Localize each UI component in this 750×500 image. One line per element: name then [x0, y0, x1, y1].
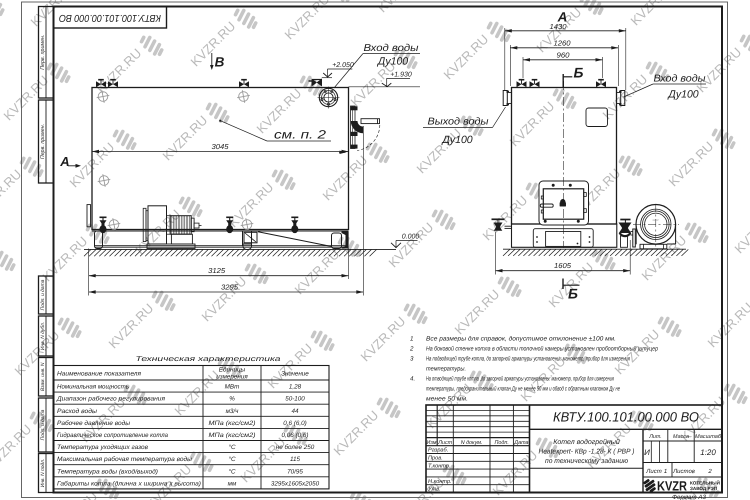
svg-text:КОТЕЛЬНЫЙ: КОТЕЛЬНЫЙ	[690, 479, 720, 485]
svg-text:измерения: измерения	[216, 373, 248, 380]
svg-text:1:20: 1:20	[700, 448, 716, 457]
svg-text:Вход воды: Вход воды	[364, 43, 420, 54]
svg-text:Номинальная мощность: Номинальная мощность	[57, 384, 129, 391]
svg-text:Вход воды: Вход воды	[654, 74, 707, 85]
svg-text:1,28: 1,28	[289, 384, 302, 391]
svg-text:Т.контр.: Т.контр.	[428, 463, 451, 469]
svg-text:Дата: Дата	[513, 440, 528, 446]
svg-text:1: 1	[664, 468, 667, 475]
svg-text:И: И	[644, 448, 650, 457]
svg-text:3125: 3125	[208, 266, 226, 275]
svg-text:Лист: Лист	[437, 440, 452, 446]
svg-text:А: А	[59, 154, 69, 169]
svg-text:не более 250: не более 250	[276, 444, 315, 451]
svg-text:3: 3	[410, 355, 414, 362]
svg-text:44: 44	[291, 408, 299, 415]
svg-text:°С: °С	[228, 456, 236, 463]
svg-text:1605: 1605	[554, 261, 572, 270]
svg-text:Рабочее давление воды: Рабочее давление воды	[57, 420, 130, 427]
svg-text:Б: Б	[568, 286, 578, 302]
svg-text:0.000: 0.000	[402, 234, 420, 241]
svg-text:А: А	[557, 10, 568, 25]
svg-text:Габариты котла (длинна х ширин: Габариты котла (длинна х ширина х высота…	[57, 480, 201, 487]
svg-text:Инв. N подл.: Инв. N подл.	[40, 459, 46, 488]
svg-text:4.: 4.	[410, 376, 415, 383]
svg-text:Расход воды: Расход воды	[57, 408, 97, 415]
svg-text:KVZR: KVZR	[657, 478, 687, 493]
svg-text:Подп.: Подп.	[495, 440, 509, 446]
svg-text:На боковой стенке котла в обла: На боковой стенке котла в области топочн…	[426, 345, 658, 352]
svg-text:Лист: Лист	[645, 468, 661, 475]
svg-text:Гидравлическое сопротивление к: Гидравлическое сопротивление котла	[57, 432, 168, 439]
svg-text:Значение: Значение	[281, 371, 309, 378]
svg-text:960: 960	[557, 50, 570, 59]
svg-text:Перв. примен.: Перв. примен.	[40, 124, 46, 159]
svg-text:Максимальная рабочая температу: Максимальная рабочая температура воды	[57, 456, 192, 463]
svg-text:Масса: Масса	[673, 434, 689, 440]
svg-text:Формат А3: Формат А3	[672, 494, 706, 500]
svg-text:%: %	[229, 396, 235, 403]
svg-text:0,06 (0,6): 0,06 (0,6)	[282, 432, 309, 439]
svg-text:Б: Б	[574, 65, 584, 81]
svg-text:В: В	[215, 55, 225, 70]
svg-text:Подп. и дата: Подп. и дата	[40, 409, 46, 440]
svg-text:Взам. инв. N: Взам. инв. N	[40, 362, 46, 391]
svg-text:На отводящей трубе котла ,до з: На отводящей трубе котла ,до запорной ар…	[426, 376, 614, 383]
svg-text:КВТУ.100.101.00.000 ВО: КВТУ.100.101.00.000 ВО	[59, 12, 161, 23]
svg-text:Изм: Изм	[427, 440, 437, 446]
svg-text:3295: 3295	[221, 283, 239, 292]
svg-text:Инв. N дубл.: Инв. N дубл.	[40, 322, 46, 350]
svg-text:КВЗР: КВЗР	[653, 219, 660, 222]
svg-text:70/95: 70/95	[287, 468, 303, 475]
svg-text:Техническая характеристика: Техническая характеристика	[136, 356, 281, 363]
svg-text:0,6 (6,0): 0,6 (6,0)	[283, 420, 306, 427]
svg-text:Масштаб: Масштаб	[695, 434, 722, 440]
svg-text:115: 115	[290, 456, 301, 463]
svg-text:Н.контр.: Н.контр.	[428, 479, 452, 485]
svg-text:ЗАВОД РЭП: ЗАВОД РЭП	[690, 486, 717, 491]
svg-text:Котел водогрейный: Котел водогрейный	[553, 438, 620, 446]
svg-text:Heatexpert- КВр -1,28- К ( РВР: Heatexpert- КВр -1,28- К ( РВР )	[539, 448, 635, 456]
svg-text:Наименование показателя: Наименование показателя	[57, 371, 142, 378]
svg-text:Лит.: Лит.	[648, 434, 662, 440]
svg-text:+2.050: +2.050	[332, 62, 354, 69]
svg-text:Ду100: Ду100	[441, 134, 472, 146]
svg-text:°С: °С	[228, 468, 236, 475]
svg-text:Ду100: Ду100	[667, 89, 698, 101]
svg-text:Перв. примен.: Перв. примен.	[40, 35, 46, 70]
svg-text:Подп. и дата: Подп. и дата	[40, 279, 46, 310]
svg-text:1260: 1260	[554, 38, 571, 47]
svg-text:мм: мм	[228, 480, 237, 487]
svg-text:Разраб.: Разраб.	[428, 447, 448, 454]
svg-text:+1.930: +1.930	[390, 72, 412, 79]
svg-text:3045: 3045	[212, 142, 230, 151]
svg-text:температуры, предохранительный: температуры, предохранительный клапан Ду…	[426, 386, 620, 393]
svg-text:см. п. 2: см. п. 2	[274, 128, 326, 142]
svg-text:1: 1	[410, 335, 413, 342]
svg-text:МПа (кгс/см2): МПа (кгс/см2)	[209, 432, 256, 439]
svg-text:м3/ч: м3/ч	[226, 408, 240, 415]
svg-text:Выход воды: Выход воды	[428, 117, 490, 128]
svg-text:МПа (кгс/см2): МПа (кгс/см2)	[209, 420, 256, 427]
svg-text:Ду100: Ду100	[377, 56, 408, 68]
svg-text:по техническому заданию: по техническому заданию	[545, 457, 629, 465]
svg-text:КВТУ.100.101.00.000 ВО: КВТУ.100.101.00.000 ВО	[553, 410, 699, 425]
svg-text:температуры.: температуры.	[426, 366, 466, 373]
svg-text:2: 2	[707, 468, 712, 475]
svg-text:Температура воды (вход/выход): Температура воды (вход/выход)	[57, 468, 158, 475]
svg-text:50-100: 50-100	[285, 396, 305, 403]
svg-text:МВт: МВт	[225, 384, 240, 391]
svg-text:Пров.: Пров.	[428, 456, 443, 462]
svg-text:N докум.: N докум.	[461, 440, 483, 446]
svg-text:Температура уходящих газов: Температура уходящих газов	[57, 444, 149, 451]
svg-text:На подводящей трубе котла, д: На подводящей трубе котла, до запорной а…	[426, 355, 630, 362]
svg-text:Листов: Листов	[672, 468, 695, 475]
svg-text:°С: °С	[228, 444, 236, 451]
svg-text:Утв.: Утв.	[427, 487, 441, 493]
svg-text:Все размеры для справок, допус: Все размеры для справок, допустимое откл…	[426, 335, 616, 342]
svg-text:3295х1605х2050: 3295х1605х2050	[271, 480, 320, 487]
svg-text:2: 2	[409, 345, 414, 352]
svg-text:менее 50 мм.: менее 50 мм.	[426, 396, 468, 403]
svg-text:Диапазон рабочего регулировани: Диапазон рабочего регулирования	[56, 396, 166, 403]
